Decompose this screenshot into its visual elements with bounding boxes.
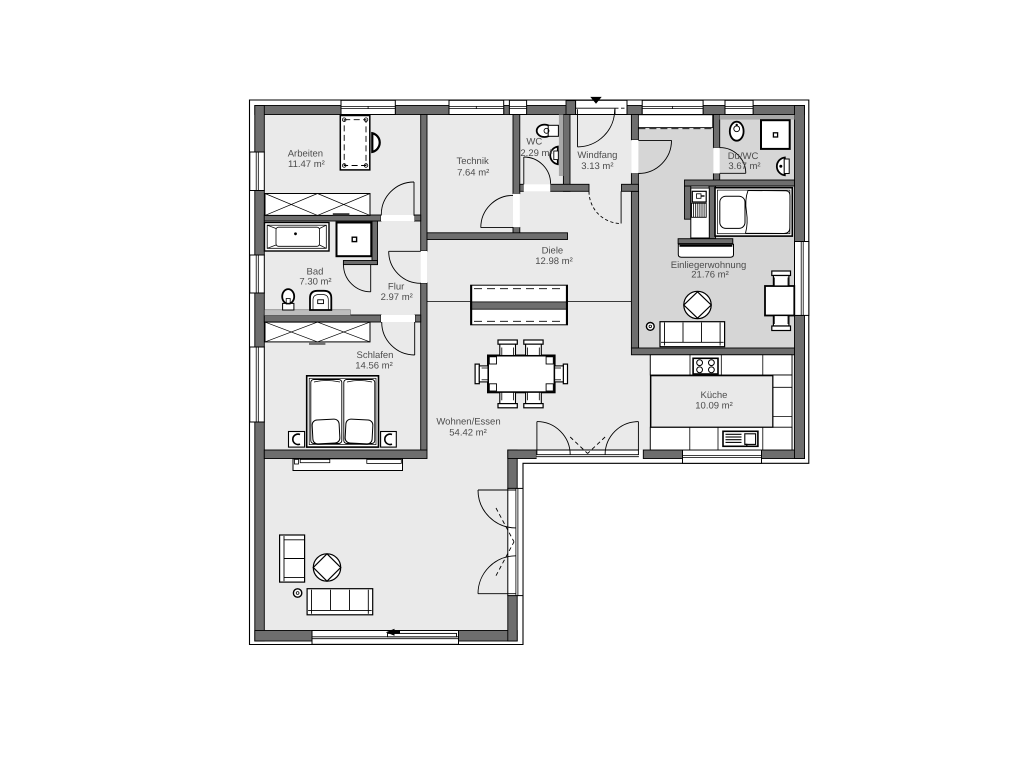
svg-text:Wohnen/Essen: Wohnen/Essen xyxy=(436,416,500,427)
svg-text:WC: WC xyxy=(526,137,542,148)
svg-text:10.09 m²: 10.09 m² xyxy=(695,401,733,412)
svg-text:54.42 m²: 54.42 m² xyxy=(449,428,487,439)
svg-text:21.76 m²: 21.76 m² xyxy=(691,269,729,280)
svg-text:Diele: Diele xyxy=(542,246,564,257)
svg-text:2.29 m²: 2.29 m² xyxy=(520,148,552,159)
svg-text:Arbeiten: Arbeiten xyxy=(288,148,323,159)
svg-text:12.98 m²: 12.98 m² xyxy=(535,256,573,267)
svg-text:Technik: Technik xyxy=(456,156,488,167)
svg-text:3.67 m²: 3.67 m² xyxy=(728,161,760,172)
svg-text:11.47 m²: 11.47 m² xyxy=(288,159,325,170)
svg-text:2.97 m²: 2.97 m² xyxy=(381,292,413,303)
svg-text:7.64 m²: 7.64 m² xyxy=(457,168,489,179)
svg-text:3.13 m²: 3.13 m² xyxy=(581,161,613,172)
svg-text:Flur: Flur xyxy=(388,282,404,293)
svg-text:Küche: Küche xyxy=(701,390,728,401)
svg-text:14.56 m²: 14.56 m² xyxy=(355,360,393,371)
svg-text:Windfang: Windfang xyxy=(577,150,617,161)
svg-text:7.30 m²: 7.30 m² xyxy=(299,276,331,287)
